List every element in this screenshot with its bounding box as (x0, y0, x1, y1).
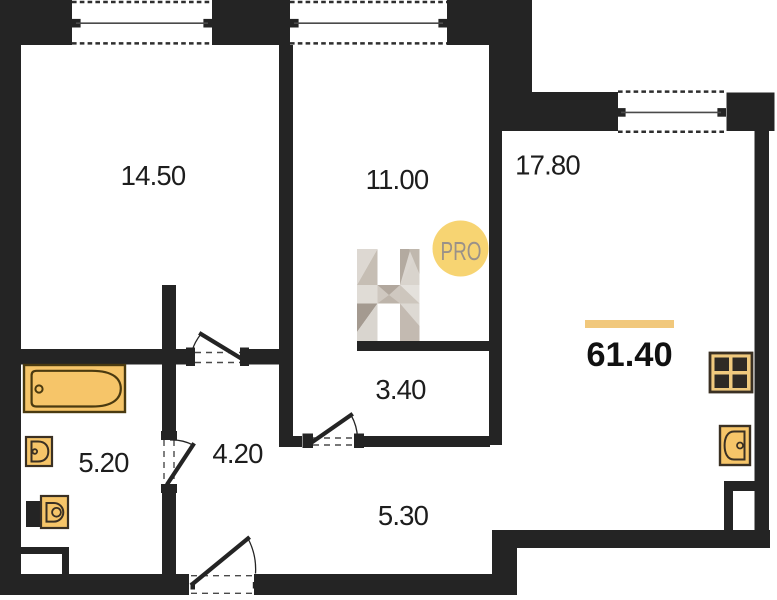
svg-text:14.50: 14.50 (121, 160, 186, 191)
svg-text:5.30: 5.30 (378, 500, 429, 531)
svg-text:61.40: 61.40 (586, 336, 672, 374)
svg-text:3.40: 3.40 (375, 374, 426, 405)
svg-text:11.00: 11.00 (366, 164, 429, 195)
svg-text:17.80: 17.80 (515, 150, 580, 181)
svg-text:5.20: 5.20 (78, 447, 129, 478)
svg-text:4.20: 4.20 (212, 438, 263, 469)
svg-text:PRO: PRO (441, 238, 482, 266)
